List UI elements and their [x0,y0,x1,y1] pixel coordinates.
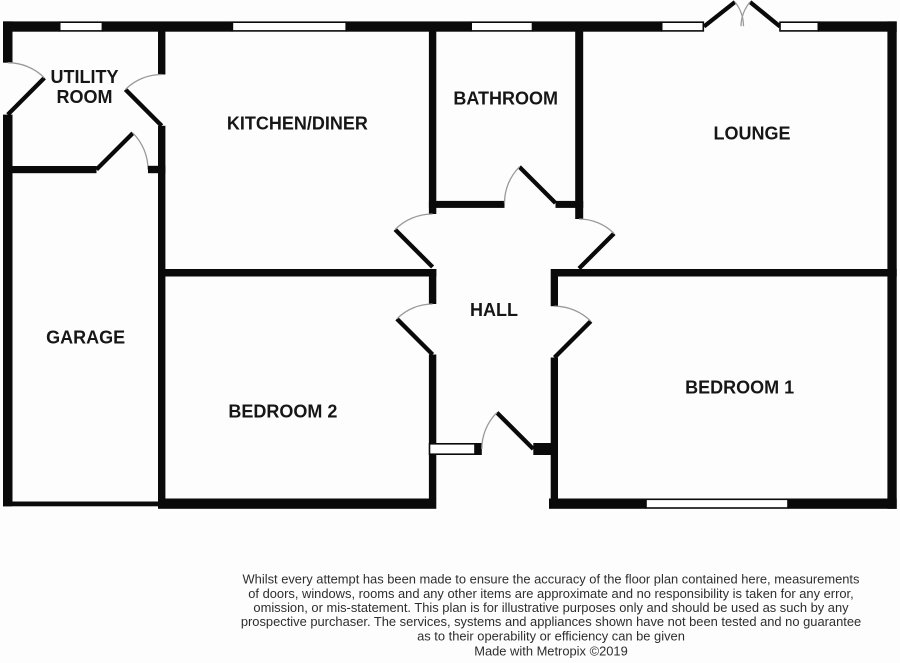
svg-text:BEDROOM 1: BEDROOM 1 [685,377,794,397]
svg-text:KITCHEN/DINER: KITCHEN/DINER [227,114,368,134]
svg-text:UTILITY: UTILITY [51,67,119,87]
svg-text:omission, or mis-statement. Th: omission, or mis-statement. This plan is… [253,600,849,615]
svg-text:BATHROOM: BATHROOM [453,89,558,109]
svg-text:as to their operability or eff: as to their operability or efficiency ca… [417,629,685,644]
svg-text:of doors, windows, rooms and a: of doors, windows, rooms and any other i… [248,586,853,601]
svg-text:GARAGE: GARAGE [46,328,125,348]
svg-text:ROOM: ROOM [57,87,113,107]
svg-text:LOUNGE: LOUNGE [713,124,790,144]
svg-text:Made with Metropix ©2019: Made with Metropix ©2019 [474,644,628,659]
svg-text:HALL: HALL [470,300,518,320]
svg-text:Whilst every attempt has been: Whilst every attempt has been made to en… [243,572,860,587]
svg-text:BEDROOM 2: BEDROOM 2 [228,402,337,422]
svg-text:prospective purchaser. The ser: prospective purchaser. The services, sys… [241,614,861,629]
